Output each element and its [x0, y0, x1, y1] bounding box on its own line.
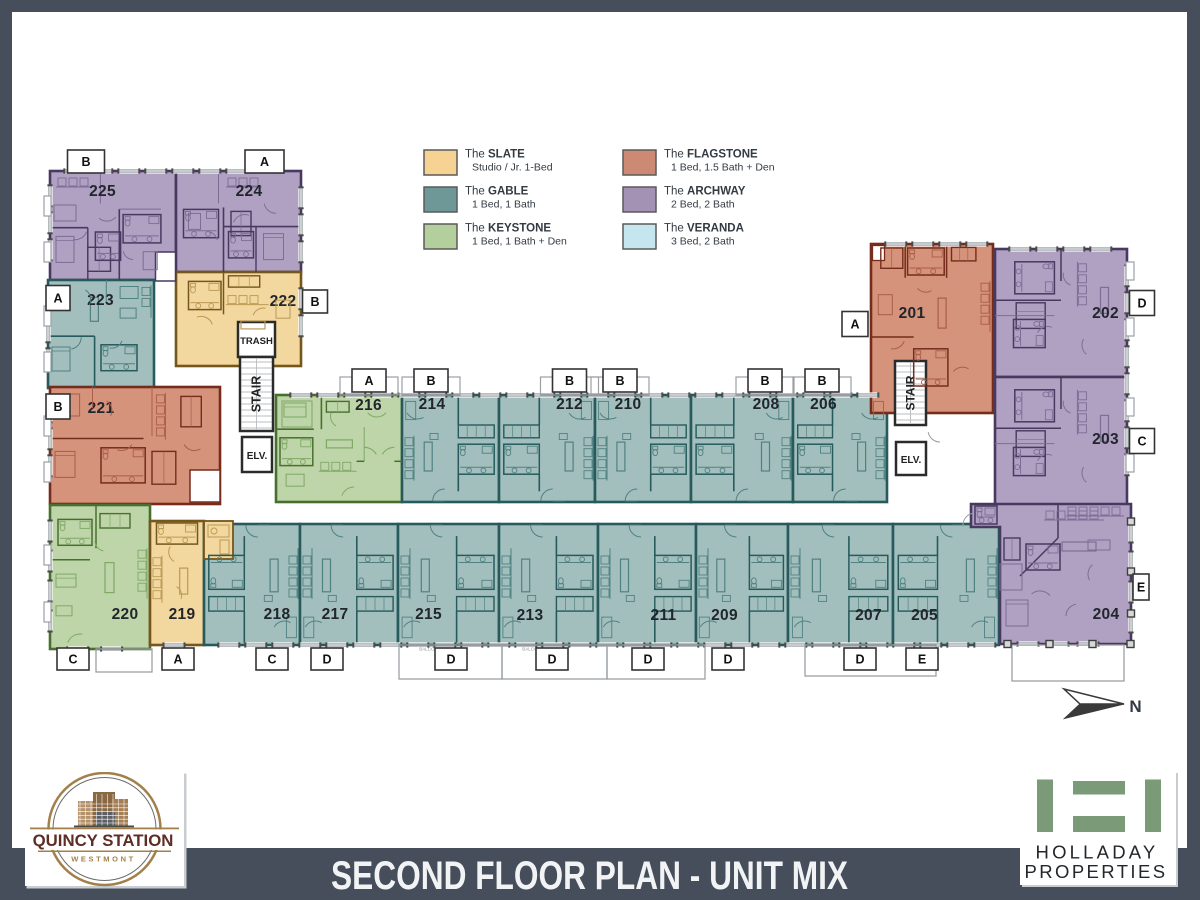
svg-text:221: 221 — [88, 400, 115, 417]
svg-text:215: 215 — [415, 606, 442, 623]
svg-text:C: C — [68, 653, 77, 667]
svg-text:WESTMONT: WESTMONT — [71, 855, 136, 864]
svg-text:216: 216 — [355, 397, 382, 414]
svg-text:208: 208 — [753, 396, 780, 413]
svg-text:220: 220 — [112, 606, 139, 623]
svg-text:1 Bed, 1 Bath: 1 Bed, 1 Bath — [472, 199, 536, 211]
svg-text:STAIR: STAIR — [250, 376, 264, 413]
svg-text:209: 209 — [711, 607, 738, 624]
svg-text:The VERANDA: The VERANDA — [664, 223, 744, 235]
svg-text:The ARCHWAY: The ARCHWAY — [664, 186, 746, 198]
svg-text:B: B — [817, 374, 826, 388]
svg-text:N: N — [1129, 697, 1141, 716]
svg-text:204: 204 — [1093, 606, 1120, 623]
svg-text:TRASH: TRASH — [240, 336, 273, 347]
svg-text:Studio / Jr. 1-Bed: Studio / Jr. 1-Bed — [472, 162, 553, 174]
svg-text:C: C — [267, 653, 276, 667]
svg-text:207: 207 — [855, 607, 882, 624]
svg-text:A: A — [53, 292, 62, 306]
svg-text:1 Bed, 1 Bath + Den: 1 Bed, 1 Bath + Den — [472, 236, 567, 248]
svg-text:A: A — [850, 318, 859, 332]
svg-text:B: B — [615, 374, 624, 388]
svg-text:224: 224 — [236, 183, 263, 200]
svg-text:206: 206 — [810, 396, 837, 413]
svg-text:225: 225 — [89, 183, 116, 200]
svg-text:B: B — [760, 374, 769, 388]
svg-text:210: 210 — [615, 396, 642, 413]
svg-text:HOLLADAY: HOLLADAY — [1036, 842, 1159, 863]
svg-text:B: B — [565, 374, 574, 388]
svg-text:1 Bed, 1.5 Bath + Den: 1 Bed, 1.5 Bath + Den — [671, 162, 775, 174]
svg-text:203: 203 — [1092, 431, 1119, 448]
svg-text:The FLAGSTONE: The FLAGSTONE — [664, 149, 758, 161]
svg-text:C: C — [1137, 435, 1146, 449]
svg-text:B: B — [310, 295, 319, 309]
svg-text:202: 202 — [1092, 305, 1119, 322]
svg-text:D: D — [723, 653, 732, 667]
svg-text:222: 222 — [270, 293, 297, 310]
svg-text:D: D — [547, 653, 556, 667]
svg-text:214: 214 — [419, 396, 446, 413]
svg-text:D: D — [322, 653, 331, 667]
svg-text:The SLATE: The SLATE — [465, 149, 525, 161]
svg-text:212: 212 — [556, 396, 583, 413]
svg-text:The GABLE: The GABLE — [465, 186, 529, 198]
svg-text:B: B — [53, 400, 62, 414]
svg-text:D: D — [1137, 297, 1146, 311]
svg-text:A: A — [364, 374, 373, 388]
svg-text:B: B — [426, 374, 435, 388]
svg-text:E: E — [1137, 581, 1145, 595]
svg-text:A: A — [260, 155, 269, 169]
svg-text:ELV.: ELV. — [901, 455, 922, 466]
svg-text:A: A — [173, 653, 182, 667]
svg-text:213: 213 — [517, 607, 544, 624]
svg-text:3 Bed, 2 Bath: 3 Bed, 2 Bath — [671, 236, 735, 248]
svg-text:ELV.: ELV. — [247, 451, 268, 462]
svg-text:E: E — [918, 653, 926, 667]
svg-text:217: 217 — [322, 606, 349, 623]
svg-text:PROPERTIES: PROPERTIES — [1025, 861, 1168, 882]
svg-text:The KEYSTONE: The KEYSTONE — [465, 223, 551, 235]
svg-text:STAIR: STAIR — [904, 375, 918, 410]
svg-text:2 Bed, 2 Bath: 2 Bed, 2 Bath — [671, 199, 735, 211]
svg-text:205: 205 — [911, 607, 938, 624]
svg-text:QUINCY STATION: QUINCY STATION — [33, 831, 174, 850]
svg-text:218: 218 — [264, 606, 291, 623]
svg-text:211: 211 — [651, 607, 677, 624]
svg-text:D: D — [855, 653, 864, 667]
svg-text:B: B — [81, 155, 90, 169]
svg-text:SECOND FLOOR PLAN - UNIT MIX: SECOND FLOOR PLAN - UNIT MIX — [331, 854, 848, 898]
svg-text:201: 201 — [899, 305, 926, 322]
svg-text:219: 219 — [169, 606, 196, 623]
svg-text:D: D — [643, 653, 652, 667]
svg-text:D: D — [446, 653, 455, 667]
